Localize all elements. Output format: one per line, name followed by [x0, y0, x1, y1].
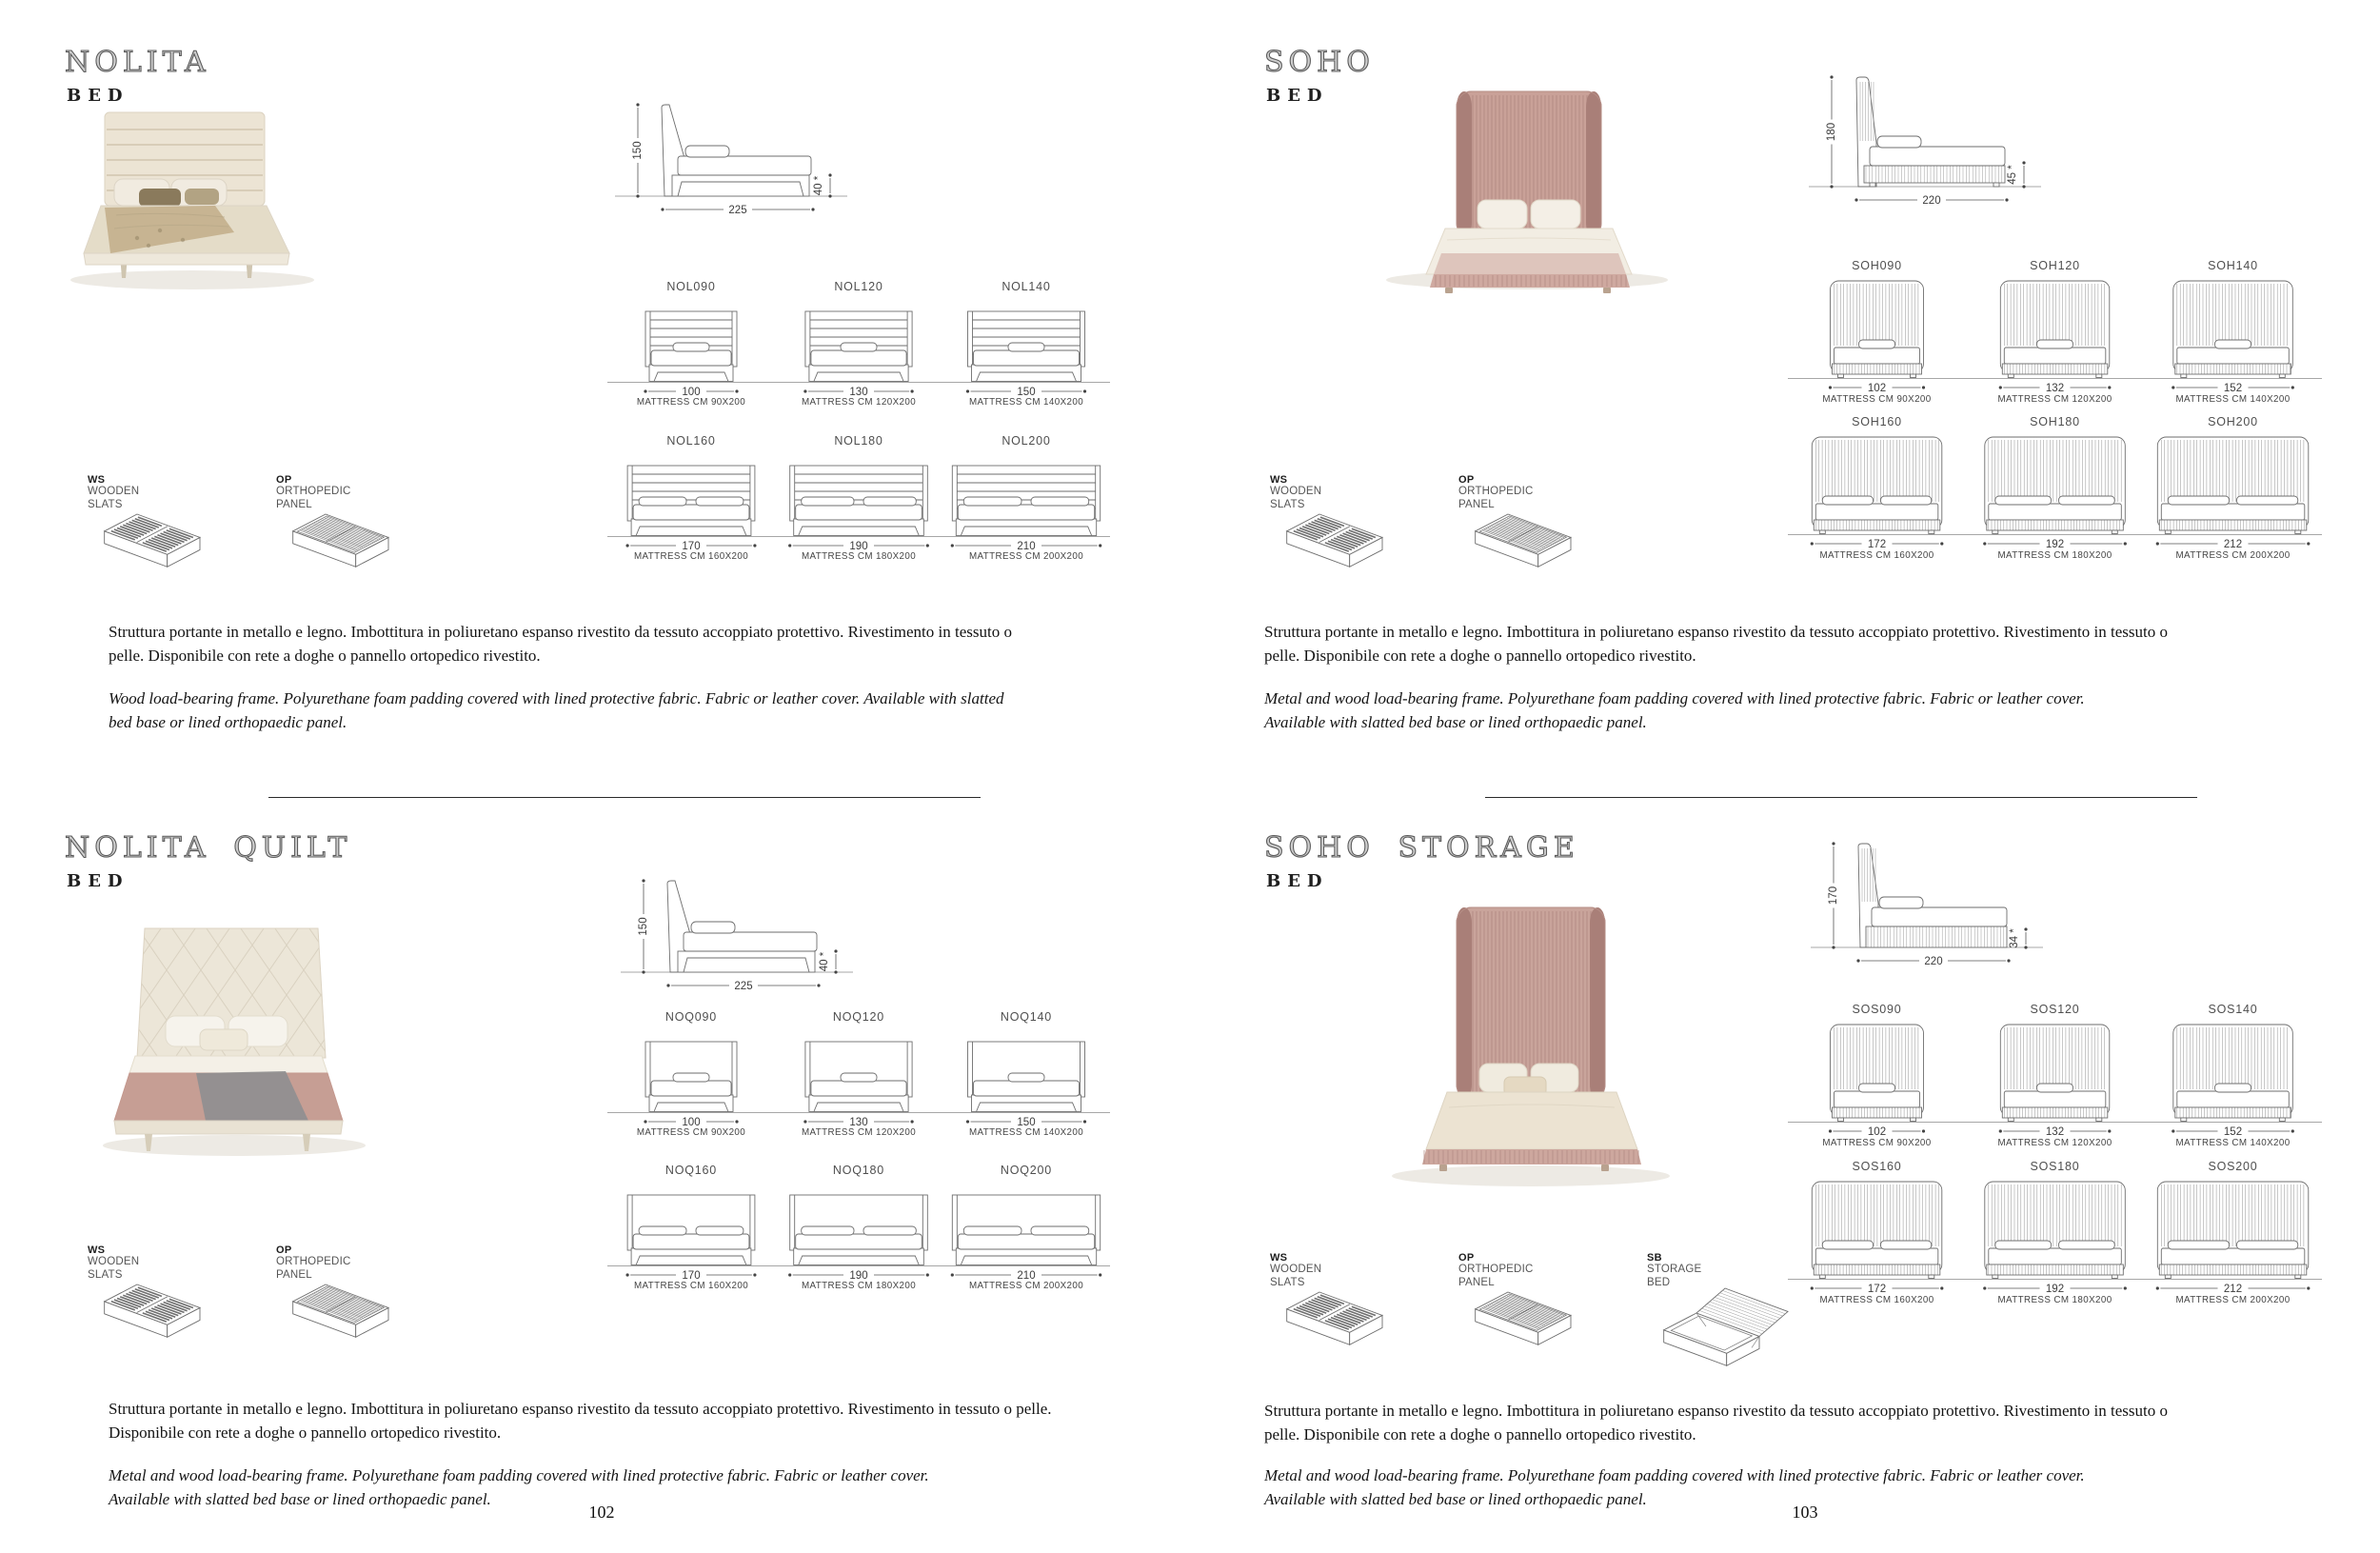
product-title: NOLITA QUILT [65, 831, 351, 865]
base-option-code: SB [1647, 1252, 1797, 1264]
svg-text:192: 192 [2046, 539, 2064, 550]
page-number-right: 103 [1776, 1503, 1834, 1523]
svg-text:MATTRESS CM 140X200: MATTRESS CM 140X200 [969, 397, 1083, 408]
svg-text:190: 190 [849, 1270, 867, 1282]
base-option-OP: OPORTHOPEDIC PANEL [276, 1244, 426, 1397]
svg-text:MATTRESS CM 200X200: MATTRESS CM 200X200 [969, 551, 1083, 562]
svg-text:225: 225 [728, 205, 746, 216]
product-photo [1354, 76, 1696, 302]
svg-text:34 *: 34 * [2009, 928, 2020, 948]
svg-text:MATTRESS CM 140X200: MATTRESS CM 140X200 [2175, 1138, 2290, 1148]
size-variant-SOS140: SOS140152MATTRESS CM 140X200 [2144, 1003, 2322, 1152]
svg-text:MATTRESS CM 180X200: MATTRESS CM 180X200 [802, 1281, 916, 1291]
base-option-code: OP [276, 474, 426, 486]
wooden-slats-icon [1279, 503, 1422, 607]
product-title: SOHO STORAGE [1264, 831, 1579, 865]
variant-code: SOH180 [1966, 415, 2144, 429]
svg-text:150: 150 [1017, 387, 1035, 398]
description-italian: Struttura portante in metallo e legno. I… [1264, 1400, 2178, 1447]
base-options: WSWOODEN SLATSOPORTHOPEDIC PANEL [1270, 474, 1609, 627]
size-variant-NOQ120: NOQ120130MATTRESS CM 120X200 [775, 1010, 942, 1143]
size-variant-SOS160: SOS160172MATTRESS CM 160X200 [1788, 1160, 1966, 1309]
svg-text:45 *: 45 * [2007, 165, 2018, 185]
svg-text:170: 170 [682, 541, 700, 552]
size-variant-SOH160: SOH160172MATTRESS CM 160X200 [1788, 415, 1966, 565]
description-english: Metal and wood load-bearing frame. Polyu… [109, 1464, 984, 1512]
svg-text:MATTRESS CM 120X200: MATTRESS CM 120X200 [1997, 394, 2112, 405]
base-option-code: OP [276, 1244, 426, 1256]
product-section-nolita-quilt: NOLITA QUILT BED 15022540 * NOQ090100MAT… [38, 814, 1133, 1547]
svg-text:150: 150 [638, 917, 649, 935]
variant-code: NOL140 [942, 280, 1110, 294]
size-variant-NOQ090: NOQ090100MATTRESS CM 90X200 [607, 1010, 775, 1143]
description-english: Wood load-bearing frame. Polyurethane fo… [109, 687, 1013, 735]
variant-code: NOL090 [607, 280, 775, 294]
svg-text:132: 132 [2046, 1126, 2064, 1138]
size-variant-NOQ200: NOQ200210MATTRESS CM 200X200 [942, 1164, 1110, 1296]
size-variant-SOS200: SOS200212MATTRESS CM 200X200 [2144, 1160, 2322, 1309]
base-options: WSWOODEN SLATSOPORTHOPEDIC PANEL [88, 1244, 426, 1397]
svg-text:172: 172 [1868, 539, 1886, 550]
product-subtitle: BED [1266, 871, 1329, 891]
base-options: WSWOODEN SLATSOPORTHOPEDIC PANELSBSTORAG… [1270, 1252, 1797, 1404]
svg-text:130: 130 [849, 387, 867, 398]
svg-text:210: 210 [1017, 1270, 1035, 1282]
svg-text:212: 212 [2224, 539, 2242, 550]
size-variant-NOQ140: NOQ140150MATTRESS CM 140X200 [942, 1010, 1110, 1143]
section-divider-right [1485, 797, 2197, 798]
product-section-soho: SOHO BED 18022045 * SOH090102MATTRESS CM… [1228, 29, 2351, 790]
orthopedic-panel-icon [286, 503, 428, 607]
size-variants-grid: SOS090102MATTRESS CM 90X200SOS120132MATT… [1788, 1003, 2322, 1309]
variant-code: NOQ180 [775, 1164, 942, 1178]
side-dimension-diagram: 15022540 * [607, 852, 864, 1002]
base-option-code: OP [1458, 1252, 1609, 1264]
svg-text:132: 132 [2046, 383, 2064, 394]
svg-text:MATTRESS CM 90X200: MATTRESS CM 90X200 [637, 397, 745, 408]
side-dimension-diagram: 15022540 * [602, 76, 859, 226]
base-option-WS: WSWOODEN SLATS [88, 474, 238, 627]
variant-code: SOS200 [2144, 1160, 2322, 1174]
svg-text:MATTRESS CM 200X200: MATTRESS CM 200X200 [2175, 1295, 2290, 1305]
svg-text:40 *: 40 * [813, 175, 824, 195]
svg-text:MATTRESS CM 120X200: MATTRESS CM 120X200 [802, 397, 916, 408]
base-option-code: WS [88, 474, 238, 486]
svg-text:40 *: 40 * [819, 951, 830, 971]
orthopedic-panel-icon [1468, 1281, 1611, 1385]
svg-text:225: 225 [734, 981, 752, 992]
product-title: SOHO [1264, 46, 1375, 79]
svg-text:150: 150 [632, 141, 644, 159]
svg-text:100: 100 [682, 1117, 700, 1128]
description-italian: Struttura portante in metallo e legno. I… [109, 621, 1022, 668]
section-divider-left [268, 797, 981, 798]
svg-text:152: 152 [2224, 383, 2242, 394]
description-italian: Struttura portante in metallo e legno. I… [1264, 621, 2178, 668]
product-photo [84, 896, 379, 1172]
catalog-spread: NOLITA BED 15022540 * NOL090100MATTRESS … [0, 0, 2380, 1553]
variant-code: SOS160 [1788, 1160, 1966, 1174]
variant-code: NOQ090 [607, 1010, 775, 1025]
product-photo [50, 88, 335, 300]
svg-text:MATTRESS CM 120X200: MATTRESS CM 120X200 [802, 1127, 916, 1138]
svg-text:100: 100 [682, 387, 700, 398]
variant-code: SOH200 [2144, 415, 2322, 429]
variant-code: NOL200 [942, 434, 1110, 448]
size-variant-NOL200: NOL200210MATTRESS CM 200X200 [942, 434, 1110, 567]
svg-text:192: 192 [2046, 1284, 2064, 1295]
size-variant-SOS180: SOS180192MATTRESS CM 180X200 [1966, 1160, 2144, 1309]
svg-text:150: 150 [1017, 1117, 1035, 1128]
size-variant-SOH180: SOH180192MATTRESS CM 180X200 [1966, 415, 2144, 565]
svg-text:MATTRESS CM 90X200: MATTRESS CM 90X200 [1822, 394, 1931, 405]
base-option-code: WS [1270, 1252, 1420, 1264]
svg-text:220: 220 [1922, 195, 1940, 207]
svg-text:MATTRESS CM 140X200: MATTRESS CM 140X200 [2175, 394, 2290, 405]
size-variant-SOH090: SOH090102MATTRESS CM 90X200 [1788, 259, 1966, 408]
size-variant-NOL160: NOL160170MATTRESS CM 160X200 [607, 434, 775, 567]
product-subtitle: BED [1266, 86, 1329, 106]
storage-bed-icon [1656, 1281, 1799, 1385]
base-options: WSWOODEN SLATSOPORTHOPEDIC PANEL [88, 474, 426, 627]
variant-code: SOS120 [1966, 1003, 2144, 1017]
svg-text:152: 152 [2224, 1126, 2242, 1138]
size-variant-SOS090: SOS090102MATTRESS CM 90X200 [1788, 1003, 1966, 1152]
svg-text:MATTRESS CM 160X200: MATTRESS CM 160X200 [1819, 550, 1934, 561]
wooden-slats-icon [97, 503, 240, 607]
wooden-slats-icon [1279, 1281, 1422, 1385]
size-variant-NOL140: NOL140150MATTRESS CM 140X200 [942, 280, 1110, 412]
base-option-SB: SBSTORAGE BED [1647, 1252, 1797, 1404]
size-variant-NOQ160: NOQ160170MATTRESS CM 160X200 [607, 1164, 775, 1296]
description-italian: Struttura portante in metallo e legno. I… [109, 1398, 1070, 1445]
size-variant-SOH120: SOH120132MATTRESS CM 120X200 [1966, 259, 2144, 408]
base-option-WS: WSWOODEN SLATS [88, 1244, 238, 1397]
variant-code: NOQ160 [607, 1164, 775, 1178]
svg-text:180: 180 [1826, 123, 1837, 141]
svg-text:MATTRESS CM 200X200: MATTRESS CM 200X200 [969, 1281, 1083, 1291]
svg-text:170: 170 [1828, 886, 1839, 905]
svg-text:MATTRESS CM 200X200: MATTRESS CM 200X200 [2175, 550, 2290, 561]
svg-text:190: 190 [849, 541, 867, 552]
size-variant-NOL120: NOL120130MATTRESS CM 120X200 [775, 280, 942, 412]
size-variants-grid: NOL090100MATTRESS CM 90X200NOL120130MATT… [607, 280, 1110, 567]
base-option-OP: OPORTHOPEDIC PANEL [1458, 1252, 1609, 1404]
variant-code: NOQ120 [775, 1010, 942, 1025]
size-variant-SOH140: SOH140152MATTRESS CM 140X200 [2144, 259, 2322, 408]
svg-text:MATTRESS CM 140X200: MATTRESS CM 140X200 [969, 1127, 1083, 1138]
orthopedic-panel-icon [286, 1273, 428, 1378]
variant-code: SOS090 [1788, 1003, 1966, 1017]
variant-code: SOH160 [1788, 415, 1966, 429]
variant-code: SOS180 [1966, 1160, 2144, 1174]
variant-code: SOH140 [2144, 259, 2322, 273]
page-number-left: 102 [573, 1503, 630, 1523]
svg-text:210: 210 [1017, 541, 1035, 552]
base-option-OP: OPORTHOPEDIC PANEL [1458, 474, 1609, 627]
size-variants-grid: SOH090102MATTRESS CM 90X200SOH120132MATT… [1788, 259, 2322, 565]
svg-text:220: 220 [1924, 956, 1942, 967]
variant-code: NOQ200 [942, 1164, 1110, 1178]
svg-text:MATTRESS CM 160X200: MATTRESS CM 160X200 [634, 551, 748, 562]
variant-code: SOS140 [2144, 1003, 2322, 1017]
svg-text:MATTRESS CM 90X200: MATTRESS CM 90X200 [637, 1127, 745, 1138]
variant-code: SOH090 [1788, 259, 1966, 273]
base-option-WS: WSWOODEN SLATS [1270, 474, 1420, 627]
side-dimension-diagram: 17022034 * [1797, 827, 2054, 977]
svg-text:MATTRESS CM 180X200: MATTRESS CM 180X200 [1997, 1295, 2112, 1305]
svg-text:MATTRESS CM 160X200: MATTRESS CM 160X200 [1819, 1295, 1934, 1305]
variant-code: NOL180 [775, 434, 942, 448]
svg-text:102: 102 [1868, 383, 1886, 394]
base-option-code: OP [1458, 474, 1609, 486]
size-variant-SOH200: SOH200212MATTRESS CM 200X200 [2144, 415, 2322, 565]
side-dimension-diagram: 18022045 * [1795, 67, 2053, 216]
product-subtitle: BED [67, 871, 129, 891]
base-option-code: WS [88, 1244, 238, 1256]
size-variant-SOS120: SOS120132MATTRESS CM 120X200 [1966, 1003, 2144, 1152]
description-english: Metal and wood load-bearing frame. Polyu… [1264, 1464, 2140, 1512]
svg-text:MATTRESS CM 180X200: MATTRESS CM 180X200 [802, 551, 916, 562]
svg-text:212: 212 [2224, 1284, 2242, 1295]
product-title: NOLITA [65, 46, 210, 79]
variant-code: NOQ140 [942, 1010, 1110, 1025]
svg-text:130: 130 [849, 1117, 867, 1128]
product-section-soho-storage: SOHO STORAGE BED 17022034 * SOS090102MAT… [1228, 814, 2351, 1547]
variant-code: SOH120 [1966, 259, 2144, 273]
base-option-OP: OPORTHOPEDIC PANEL [276, 474, 426, 627]
variant-code: NOL120 [775, 280, 942, 294]
size-variant-NOL180: NOL180190MATTRESS CM 180X200 [775, 434, 942, 567]
svg-text:MATTRESS CM 90X200: MATTRESS CM 90X200 [1822, 1138, 1931, 1148]
size-variants-grid: NOQ090100MATTRESS CM 90X200NOQ120130MATT… [607, 1010, 1110, 1296]
svg-text:170: 170 [682, 1270, 700, 1282]
svg-text:102: 102 [1868, 1126, 1886, 1138]
base-option-WS: WSWOODEN SLATS [1270, 1252, 1420, 1404]
size-variant-NOL090: NOL090100MATTRESS CM 90X200 [607, 280, 775, 412]
base-option-code: WS [1270, 474, 1420, 486]
description-english: Metal and wood load-bearing frame. Polyu… [1264, 687, 2140, 735]
svg-text:172: 172 [1868, 1284, 1886, 1295]
product-photo [1363, 894, 1696, 1202]
svg-text:MATTRESS CM 180X200: MATTRESS CM 180X200 [1997, 550, 2112, 561]
variant-code: NOL160 [607, 434, 775, 448]
svg-text:MATTRESS CM 160X200: MATTRESS CM 160X200 [634, 1281, 748, 1291]
orthopedic-panel-icon [1468, 503, 1611, 607]
svg-text:MATTRESS CM 120X200: MATTRESS CM 120X200 [1997, 1138, 2112, 1148]
product-section-nolita: NOLITA BED 15022540 * NOL090100MATTRESS … [38, 29, 1133, 790]
size-variant-NOQ180: NOQ180190MATTRESS CM 180X200 [775, 1164, 942, 1296]
wooden-slats-icon [97, 1273, 240, 1378]
